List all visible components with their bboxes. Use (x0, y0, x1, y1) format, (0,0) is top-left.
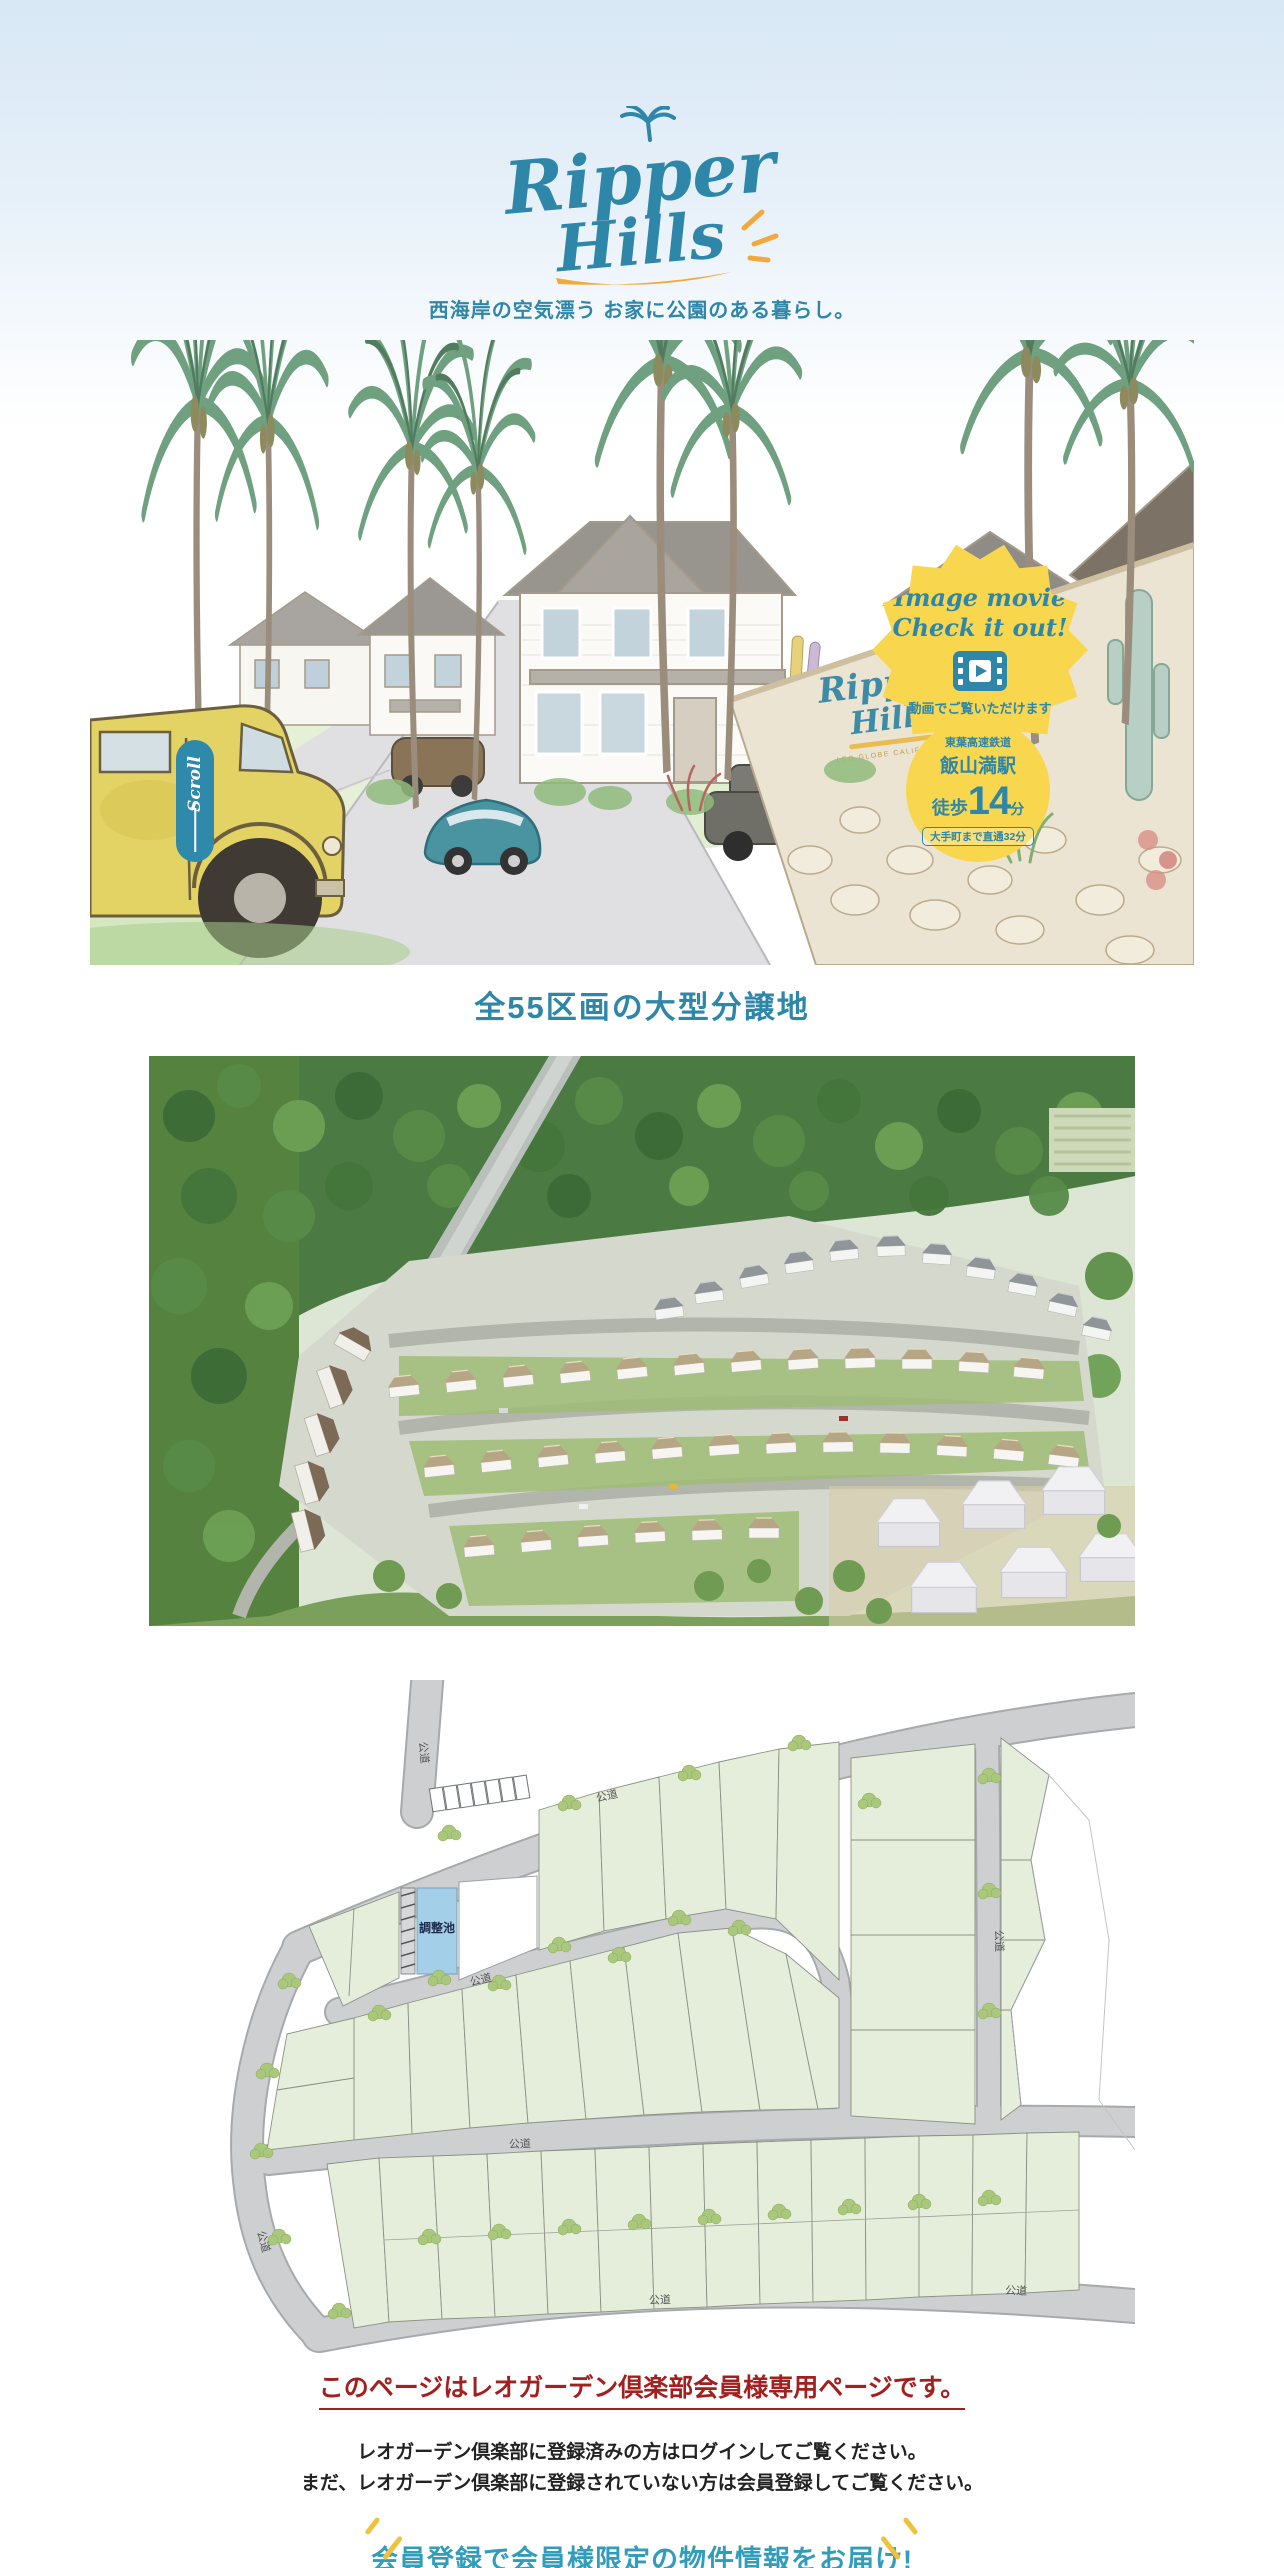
scroll-indicator[interactable]: Scroll (176, 740, 214, 862)
ripper-hills-logo: Ripper Hills (482, 106, 802, 292)
cta-right-slash-icon (902, 2517, 918, 2536)
register-instruction: まだ、レオガーデン倶楽部に登録されていない方は会員登録してご覧ください。 (0, 2468, 1284, 2495)
video-play-icon (953, 651, 1007, 691)
railway-line-label: 東葉高速鉄道 (945, 734, 1011, 750)
svg-text:公道: 公道 (649, 2292, 671, 2307)
logo-sparkle-icon (744, 212, 776, 260)
lots-section-heading: 全55区画の大型分譲地 (0, 982, 1284, 1027)
register-cta-heading: 会員登録で会員様限定の物件情報をお届け! (0, 2538, 1284, 2568)
movie-badge-line1: Image movie (894, 583, 1066, 613)
login-instruction: レオガーデン倶楽部に登録済みの方はログインしてご覧ください。 (0, 2437, 1284, 2464)
station-name: 飯山満駅 (940, 751, 1016, 778)
movie-badge-caption: 動画でご覧いただけます (908, 698, 1051, 717)
direct-access-label: 大手町まで直通32分 (922, 827, 1034, 846)
tagline: 西海岸の空気漂う お家に公園のある暮らし。 (0, 294, 1284, 323)
page: Ripper Hills 西海岸の空気漂う お家に公園のある暮らし。 (0, 0, 1284, 2568)
members-only-notice[interactable]: このページはレオガーデン倶楽部会員様専用ページです。 (0, 2368, 1284, 2410)
retention-pond: 調整池 (401, 1888, 457, 1974)
svg-text:公道: 公道 (992, 1930, 1007, 1952)
cta-left-slash-icon (364, 2517, 380, 2536)
scroll-line (194, 808, 196, 852)
aerial-render-image (149, 1056, 1135, 1626)
station-access-badge: 東葉高速鉄道 飯山満駅 徒歩14分 大手町まで直通32分 (906, 718, 1050, 862)
logo-word-2: Hills (551, 198, 728, 288)
svg-text:公道: 公道 (509, 2136, 531, 2151)
hero-illustration: Ripper Hills LEO GLOBE CALIFORNIA (90, 340, 1194, 965)
walk-time: 徒歩14分 (932, 779, 1025, 824)
svg-text:公道: 公道 (1005, 2283, 1027, 2298)
pond-label: 調整池 (419, 1920, 455, 1935)
movie-badge-line2: Check it out! (892, 613, 1067, 643)
scroll-label: Scroll (185, 756, 205, 812)
site-plan-image: 調整池 (149, 1680, 1135, 2360)
